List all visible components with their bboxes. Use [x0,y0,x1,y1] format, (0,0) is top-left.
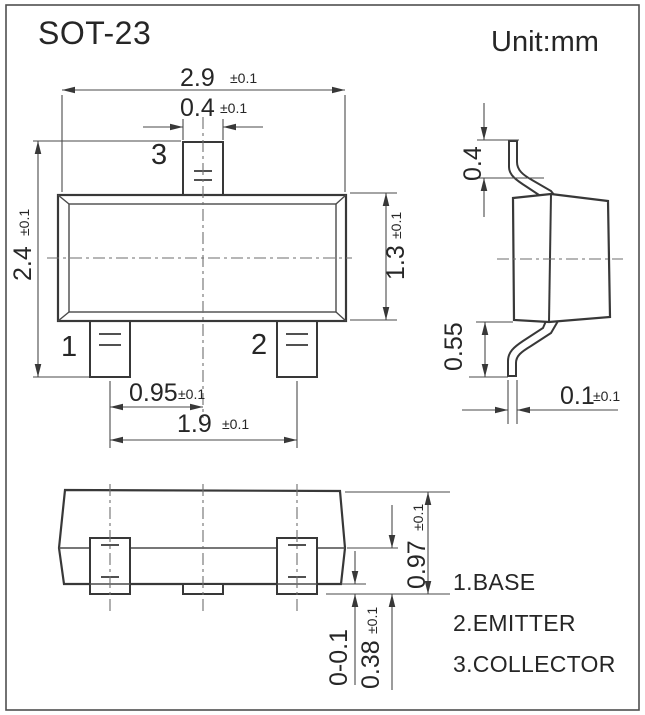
dim-value: 0.38 [357,640,385,689]
package-drawing: SOT-23 Unit:mm 1 2 3 [0,0,645,715]
dim-value: 2.9 [180,64,215,92]
dim-value: 0.4 [459,146,487,181]
pin1-number: 1 [61,331,77,363]
legend-item-emitter: 2.EMITTER [453,610,576,636]
dim-tolerance: ±0.1 [388,212,404,239]
pin2-lead [277,321,317,377]
dim-lead-thickness: 0.1 ±0.1 [462,380,620,424]
pin1-lead [90,321,130,377]
dim-body-depth: 1.3 ±0.1 [350,193,410,320]
dim-pin-pitch: 0.95 ±0.1 [110,379,205,407]
pin3-number: 3 [151,139,167,171]
dim-value: 0.95 [129,379,178,407]
dim-tolerance: ±0.1 [220,100,247,116]
dim-value: 0-0.1 [325,629,353,686]
dim-tolerance: ±0.1 [410,504,426,531]
dim-tolerance: ±0.1 [230,70,257,86]
unit-label: Unit:mm [491,26,599,58]
top-lead-profile [509,141,555,197]
dim-tolerance: ±0.1 [364,607,380,634]
dim-tolerance: ±0.1 [178,386,205,402]
dim-lead-bottom-height: 0.55 [440,322,513,377]
pin-legend: 1.BASE 2.EMITTER 3.COLLECTOR [453,569,616,677]
body-profile [513,194,610,322]
dim-tolerance: ±0.1 [222,416,249,432]
dim-value: 0.4 [180,94,215,122]
dim-value: 1.3 [382,245,410,280]
legend-item-collector: 3.COLLECTOR [453,651,616,677]
dim-value: 1.9 [177,410,212,438]
front-view: 0.97 ±0.1 0.38 ±0.1 0-0.1 [59,484,450,690]
drawing-sheet: SOT-23 Unit:mm 1 2 3 [0,0,645,715]
bottom-lead-profile [508,321,558,376]
side-view: 0.4 0.55 0.1 ±0.1 [440,103,623,424]
dim-value: 0.55 [440,322,468,371]
top-view: 1 2 3 2.9 ±0.1 0.4 ±0.1 2.4 ±0.1 [9,64,410,448]
dim-tolerance: ±0.1 [16,209,32,236]
dim-value: 0.1 [560,382,595,410]
package-title: SOT-23 [38,15,151,51]
pin2-number: 2 [251,329,267,361]
dim-value: 0.97 [403,540,431,589]
legend-item-base: 1.BASE [453,569,535,595]
dim-tolerance: ±0.1 [593,388,620,404]
dim-value: 2.4 [9,246,37,281]
